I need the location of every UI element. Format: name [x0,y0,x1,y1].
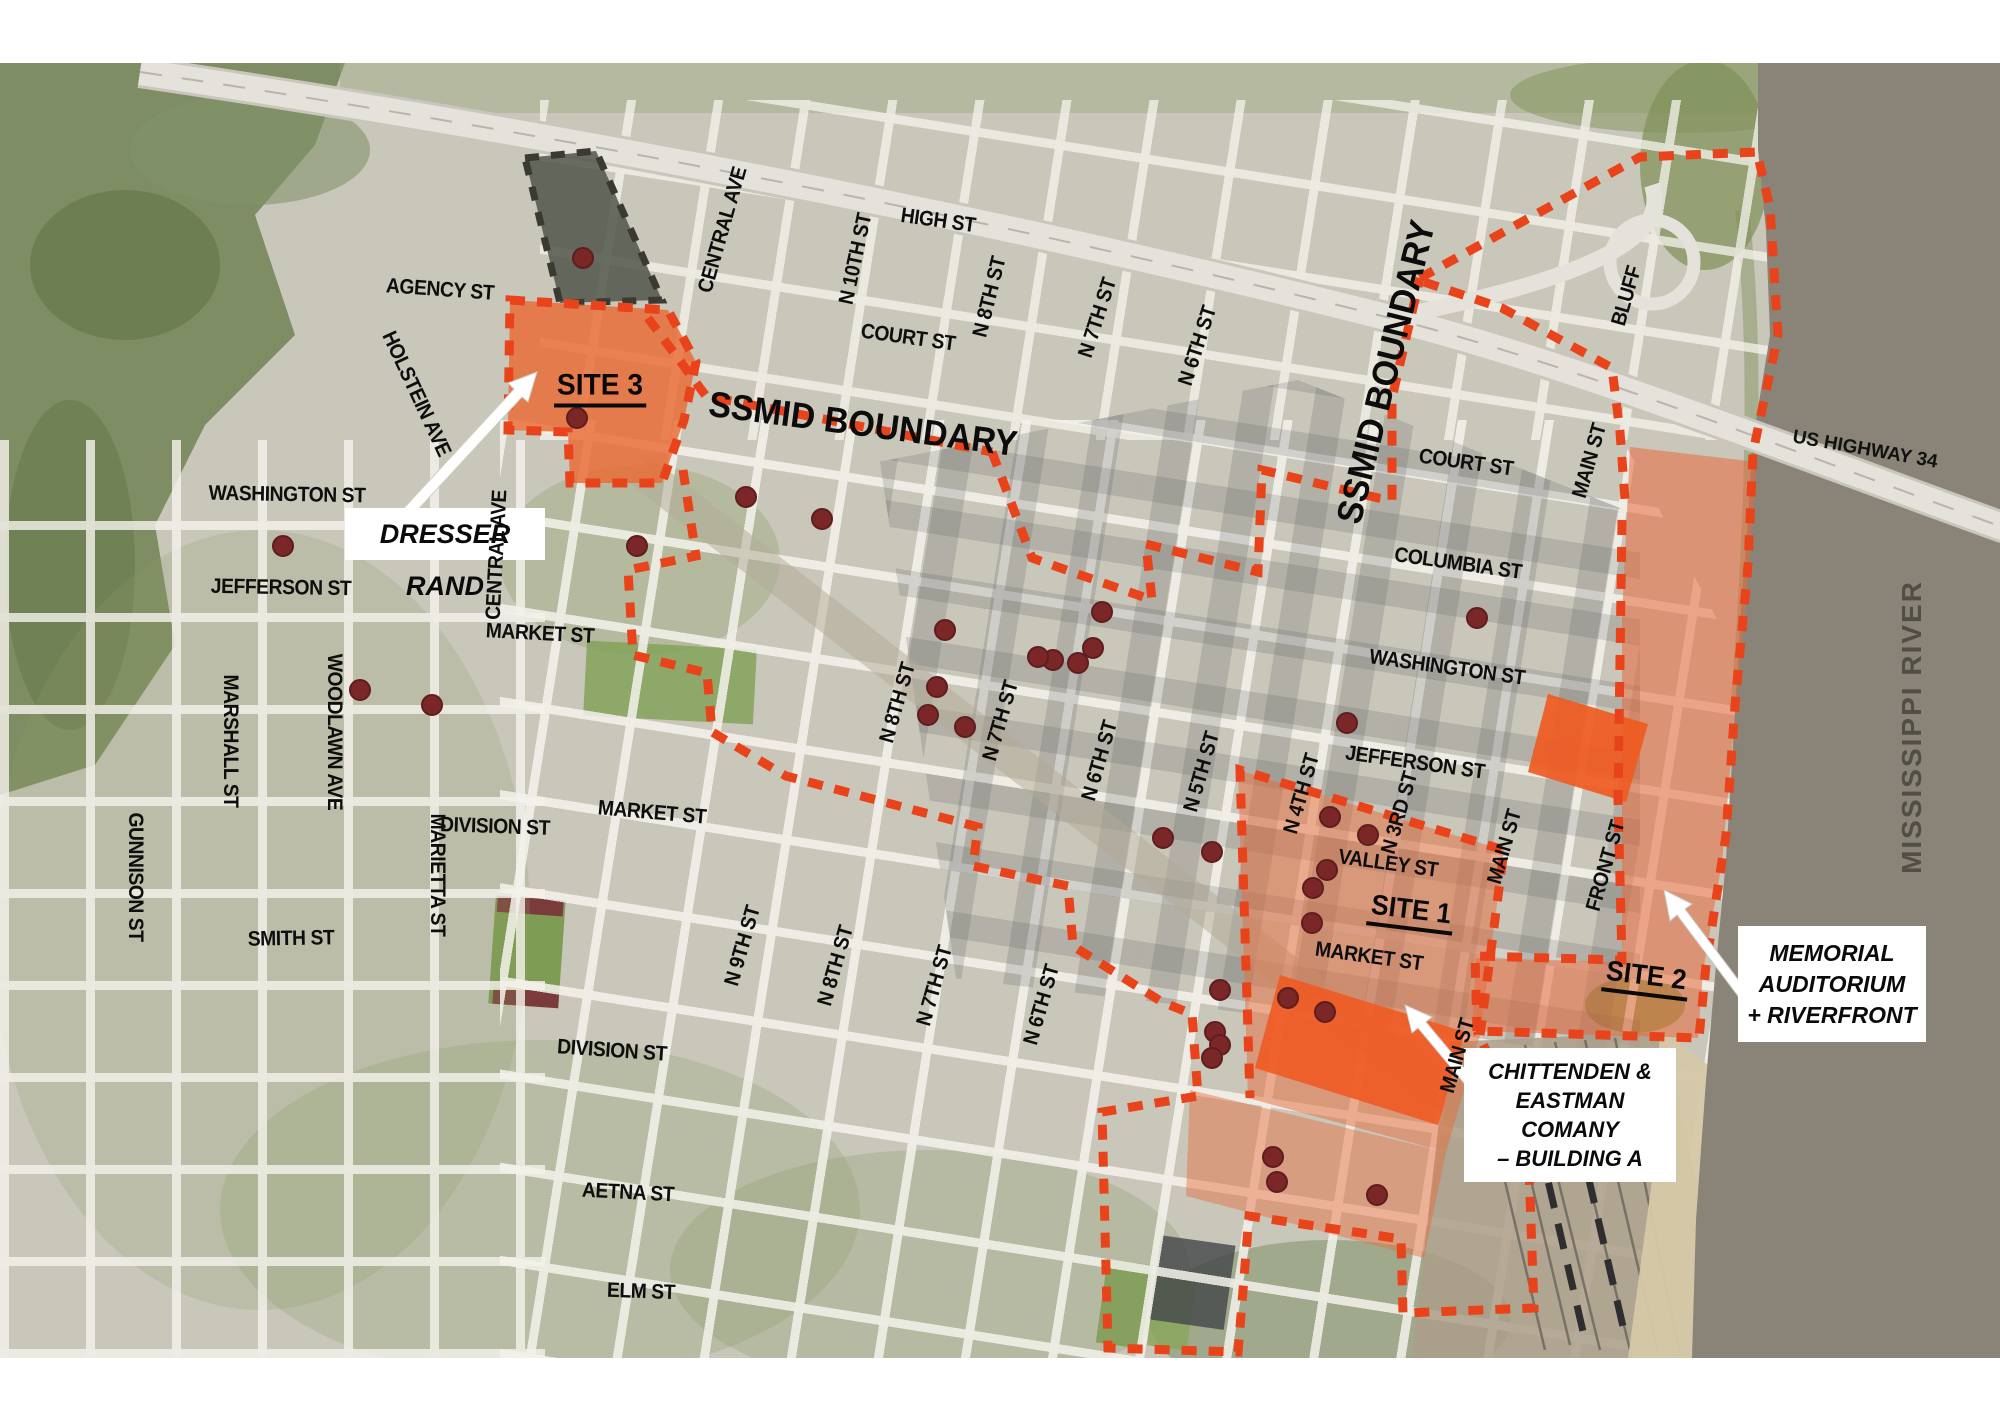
building-marker [1315,1002,1335,1022]
building-marker [935,620,955,640]
building-marker [736,487,756,507]
building-marker [1068,653,1088,673]
building-marker [1092,602,1112,622]
building-marker [1153,828,1173,848]
building-marker [1303,878,1323,898]
building-marker [627,536,647,556]
building-marker [1317,860,1337,880]
building-marker [567,408,587,428]
building-marker [1028,647,1048,667]
building-marker [1202,1048,1222,1068]
aerial-map [0,63,2000,1358]
building-marker [812,509,832,529]
building-marker [422,695,442,715]
building-marker [1302,913,1322,933]
dresser-rand-arrow [404,372,537,516]
building-marker [955,717,975,737]
dresser-rand-facility [525,151,662,303]
building-marker [1267,1172,1287,1192]
ssmid-planning-map-page: SSMID BOUNDARY SSMID BOUNDARY SITE 3 SIT… [0,0,2000,1423]
building-marker [1263,1147,1283,1167]
map-overlay-layer [0,63,2000,1358]
building-marker [1467,608,1487,628]
building-marker [1358,825,1378,845]
highway-roundabout [1610,220,1694,304]
building-marker [573,248,593,268]
site3-fill [508,300,696,483]
building-marker [1202,842,1222,862]
building-marker [1083,638,1103,658]
building-marker [1337,713,1357,733]
building-marker [918,705,938,725]
building-marker [273,536,293,556]
building-marker [1367,1185,1387,1205]
building-marker [1210,980,1230,1000]
building-marker [350,680,370,700]
building-marker [1278,988,1298,1008]
building-marker [927,677,947,697]
building-marker [1320,807,1340,827]
